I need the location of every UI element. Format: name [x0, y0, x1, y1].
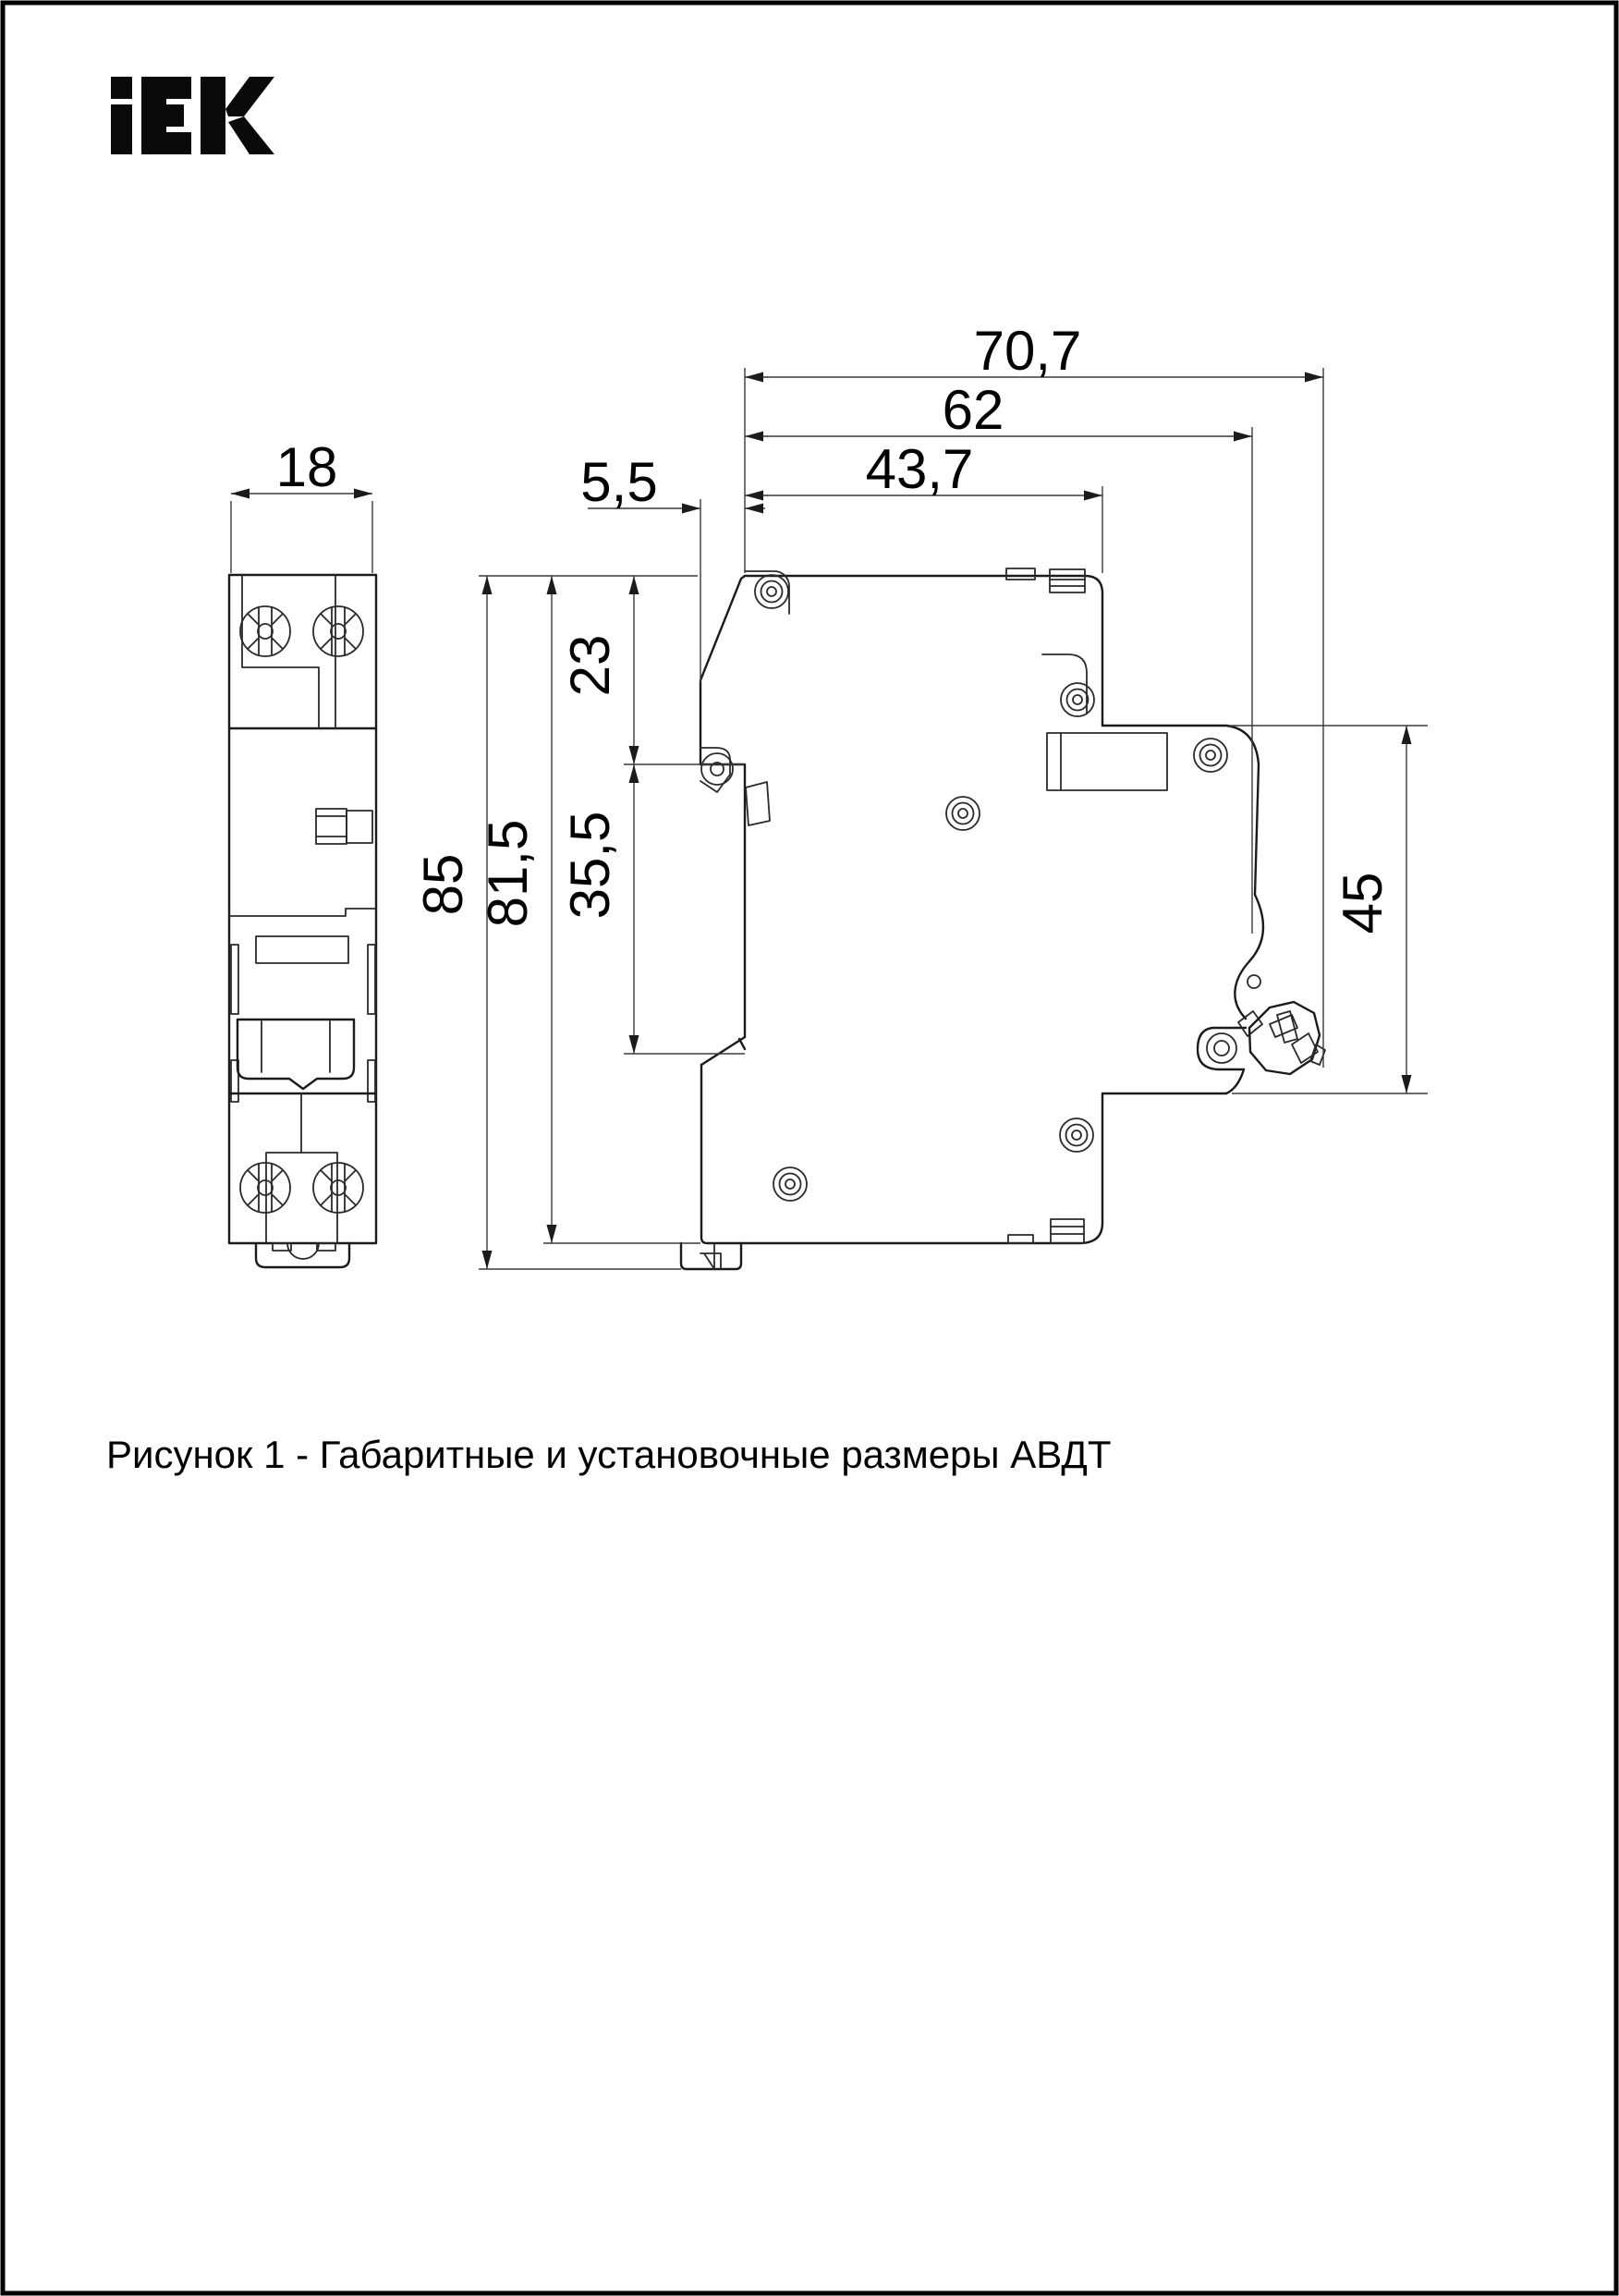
- dim-label-overall-depth: 70,7: [974, 320, 1082, 382]
- dim-label-din-rail: 45: [1332, 873, 1394, 934]
- side-screw-top-left: [755, 575, 788, 608]
- din-latch-spring-edge: [1235, 895, 1263, 1019]
- front-toggle-window: [256, 936, 348, 963]
- brand-logo: [111, 77, 274, 154]
- technical-drawing: 70,7 62 43,7 5,5 18 85 81,5 23 35,5 45 Р…: [0, 0, 1619, 2296]
- dim-label-front-width: 18: [276, 436, 338, 498]
- side-view-outline-bottom: [701, 1065, 1226, 1243]
- dim-label-depth-62: 62: [943, 379, 1004, 441]
- dim-label-depth-43-7: 43,7: [866, 438, 974, 500]
- bottom-tab-small: [1008, 1235, 1033, 1243]
- din-pocket-wall: [1047, 733, 1167, 790]
- side-screw-center: [946, 797, 980, 830]
- dim-label-mid-section: 35,5: [559, 812, 621, 920]
- side-screw-bottom-left: [773, 1167, 807, 1201]
- top-tab-large: [1050, 569, 1085, 592]
- document-page: 70,7 62 43,7 5,5 18 85 81,5 23 35,5 45 Р…: [0, 0, 1619, 2296]
- front-toggle-handle: [237, 1020, 354, 1089]
- front-terminal-screw-top-right: [313, 606, 363, 656]
- side-front-screw-housing: [700, 748, 730, 792]
- dim-label-total-height: 85: [412, 854, 474, 916]
- front-test-button: [316, 809, 347, 844]
- dim-label-upper-section: 23: [559, 635, 621, 697]
- side-view: [681, 568, 1325, 1269]
- front-terminal-screw-bottom-left: [240, 1163, 290, 1213]
- page-border: [3, 3, 1616, 2293]
- top-tab-small: [1006, 568, 1035, 580]
- front-upper-terminal-cage: [242, 575, 335, 728]
- side-screw-din-step: [1194, 739, 1227, 772]
- front-terminal-screw-top-left: [240, 606, 290, 656]
- dim-label-front-ledge: 5,5: [580, 451, 657, 513]
- front-view: [229, 575, 376, 1267]
- side-screw-top-right: [1061, 683, 1094, 716]
- dimension-annotations: 70,7 62 43,7 5,5 18 85 81,5 23 35,5 45: [231, 320, 1428, 1269]
- side-view-outline-top: [745, 576, 1102, 726]
- side-screw-bottom-right: [1060, 1118, 1093, 1152]
- front-terminal-screw-bottom-right: [313, 1163, 363, 1213]
- figure-caption: Рисунок 1 - Габаритные и установочные ра…: [106, 1433, 1111, 1476]
- dim-label-body-height: 81,5: [477, 820, 539, 928]
- side-toggle-lever: [746, 782, 770, 825]
- din-clip: [1051, 1219, 1084, 1243]
